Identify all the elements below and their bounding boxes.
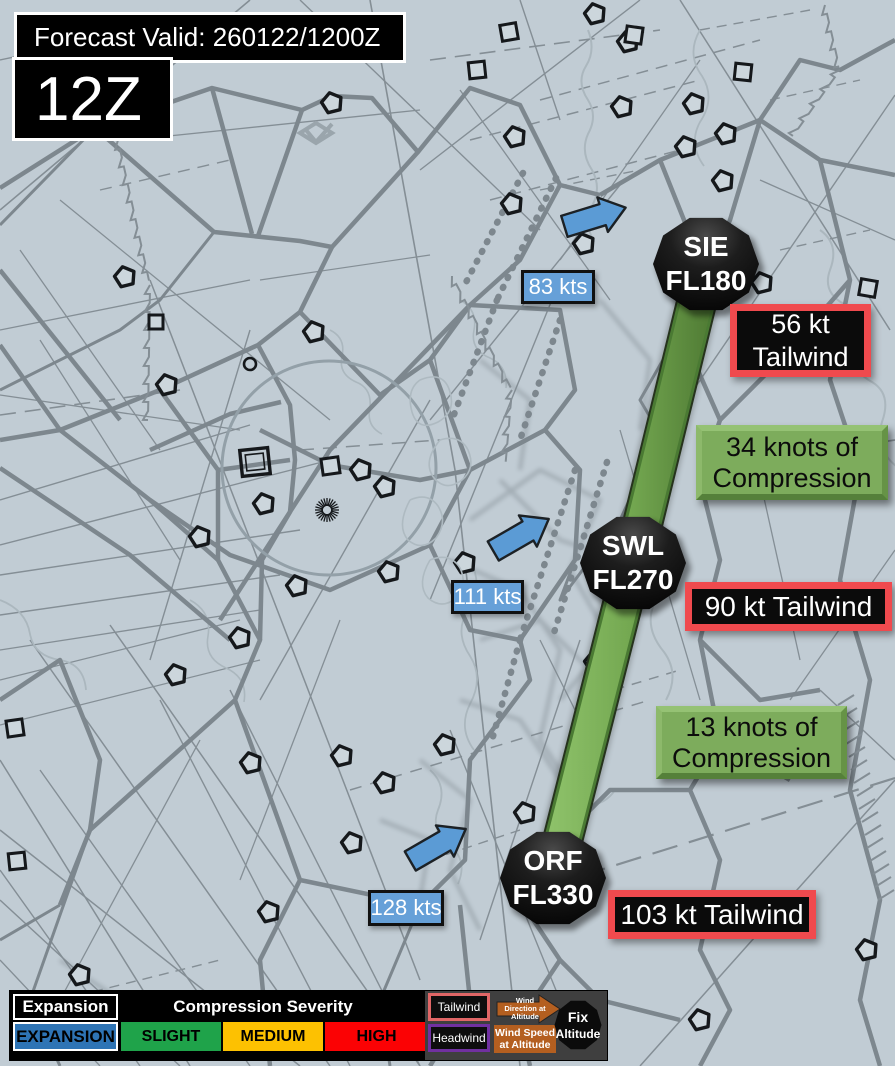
- svg-text:SWL: SWL: [602, 530, 664, 561]
- svg-text:FL330: FL330: [513, 879, 594, 910]
- svg-text:Fix: Fix: [568, 1009, 588, 1025]
- svg-text:Altitude: Altitude: [511, 1012, 539, 1021]
- svg-text:SIE: SIE: [683, 231, 728, 262]
- svg-text:FL270: FL270: [593, 564, 674, 595]
- svg-text:Altitude: Altitude: [556, 1027, 601, 1041]
- svg-text:FL180: FL180: [666, 265, 747, 296]
- svg-text:ORF: ORF: [523, 845, 582, 876]
